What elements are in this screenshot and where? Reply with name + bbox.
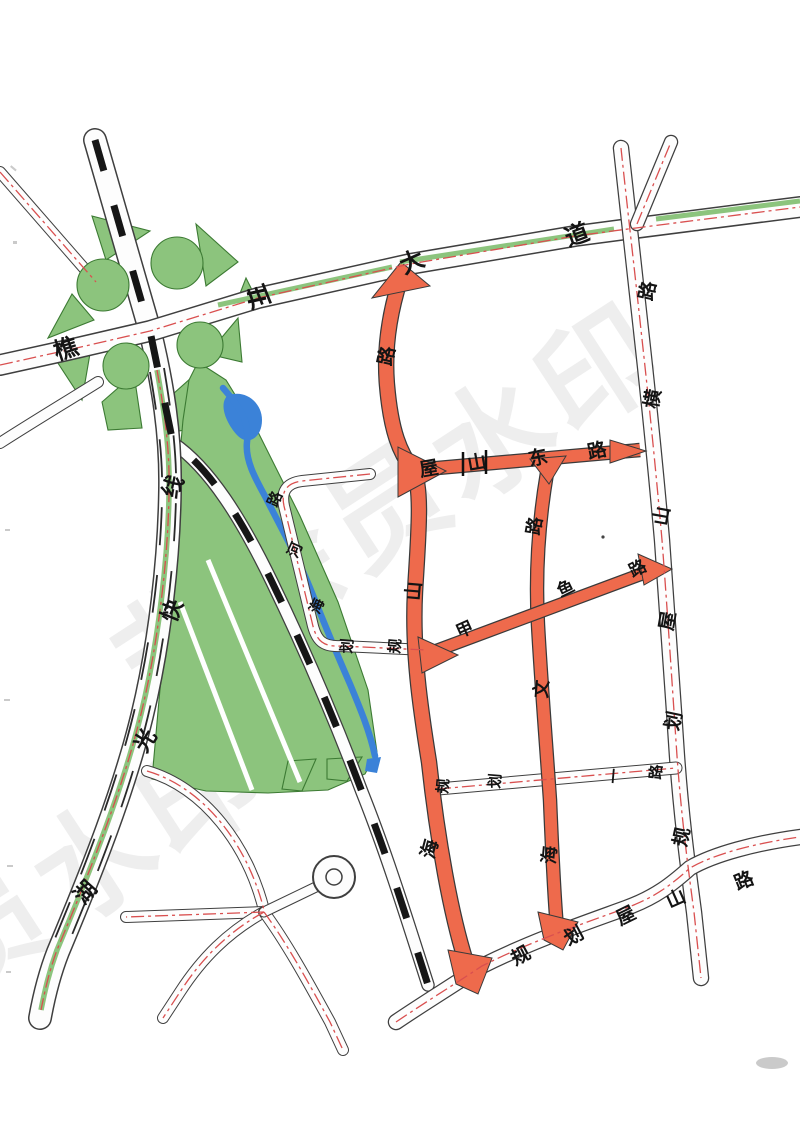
- scan-speck: [5, 529, 10, 531]
- planning-map-canvas: 非会员水印非会员水印: [0, 0, 800, 1131]
- cloverleaf-circle: [177, 322, 223, 368]
- road-label-guihua-loop-south: 划: [337, 638, 356, 655]
- road-label-haishan-road: 山: [402, 581, 426, 602]
- roundabout-island: [326, 869, 342, 885]
- cloverleaf-circle: [103, 343, 149, 389]
- road-label-guihua-loop-south: 规: [385, 638, 404, 655]
- cloverleaf-circle: [151, 237, 203, 289]
- road-label-guihua-yi-road: 一: [604, 768, 623, 785]
- road-label-wushan-east-road: 山: [466, 451, 489, 476]
- road-label-guihua-yi-road: 划: [485, 773, 504, 790]
- road-label-guihua-yi-road: 路: [646, 763, 665, 781]
- map-page: 非会员水印非会员水印: [0, 0, 800, 1131]
- scan-smudge: [756, 1057, 788, 1069]
- scan-speck: [6, 971, 11, 973]
- scan-speck: [13, 241, 17, 244]
- road-label-wushan-east-road: 屋: [418, 457, 441, 482]
- scan-speck: [7, 865, 13, 867]
- road-label-guihua-yi-road: 规: [433, 778, 452, 795]
- road-label-haiwen-road: 文: [530, 678, 554, 699]
- road-bl-west: [126, 912, 264, 917]
- scan-dot: [601, 535, 604, 538]
- road-label-guihua-wushan-heng-road: 屋: [656, 610, 681, 633]
- road-label-guihua-wushan-heng-road: 山: [650, 505, 675, 528]
- road-label-haiwen-road: 海: [538, 845, 561, 865]
- scan-speck: [4, 699, 10, 701]
- cloverleaf-circle: [77, 259, 129, 311]
